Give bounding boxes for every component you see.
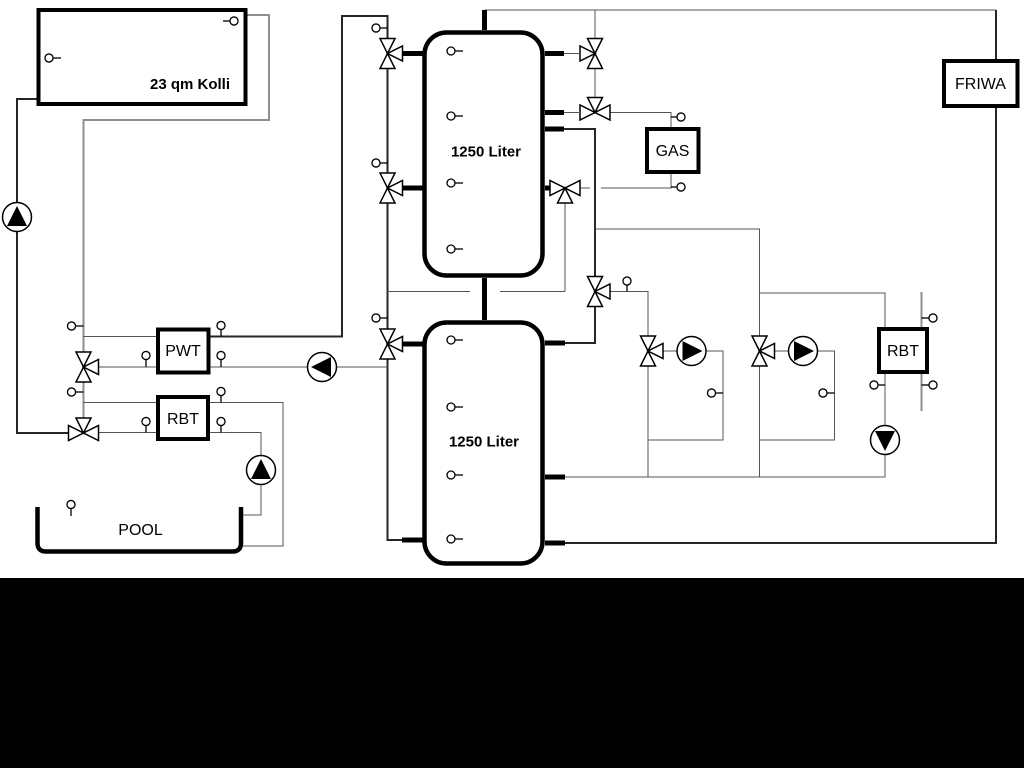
svg-text:RBT: RBT: [887, 343, 919, 360]
svg-text:FRIWA: FRIWA: [955, 76, 1006, 93]
svg-text:PWT: PWT: [165, 343, 201, 360]
svg-text:1250 Liter: 1250 Liter: [449, 434, 519, 451]
svg-text:GAS: GAS: [656, 143, 690, 160]
svg-text:1250 Liter: 1250 Liter: [451, 144, 521, 161]
svg-text:23 qm Kolli: 23 qm Kolli: [150, 76, 230, 93]
svg-text:POOL: POOL: [118, 522, 163, 539]
svg-text:RBT: RBT: [167, 411, 199, 428]
